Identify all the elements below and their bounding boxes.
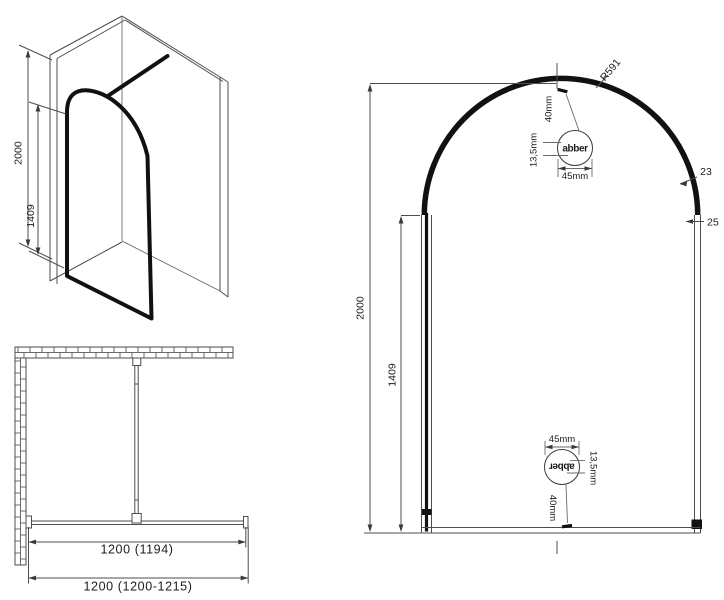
dim-logo-offset-bottom-label: 40mm: [547, 495, 558, 521]
brand-logo-text-top: abber: [562, 144, 588, 155]
dim-inner-width: 1200 (1194): [29, 527, 249, 584]
dim-elevation-overall-height: 2000: [355, 63, 558, 533]
dim-inner-width-label: 1200 (1194): [100, 543, 173, 557]
dim-elevation-overall-height-label: 2000: [355, 296, 367, 320]
dim-outer-width-label: 1200 (1200-1215): [84, 580, 193, 594]
technical-drawing-sheet: 2000 1409: [0, 0, 724, 600]
elevation-view: 2000 1409 R591 23 25: [355, 56, 719, 554]
dim-logo-width-bottom-label: 45mm: [549, 434, 575, 445]
support-bar: [109, 56, 168, 96]
support-bar-topview: [132, 358, 141, 523]
dim-profile-width-label: 25: [707, 217, 719, 229]
dim-elevation-glass-height-label: 1409: [387, 363, 399, 387]
right-profile: [692, 215, 703, 533]
dim-logo-offset-top-label: 40mm: [544, 96, 555, 122]
plan-view: 1200 (1194) 1200 (1200-1215): [15, 347, 248, 594]
dim-frame-thickness-label: 23: [700, 166, 712, 178]
bottom-logo-detail: abber 45mm 13,5mm 40mm: [545, 434, 599, 528]
back-wall-outline: [122, 16, 228, 297]
dim-glass-height-label: 1409: [25, 204, 37, 228]
perspective-view: 2000 1409: [13, 16, 229, 319]
dim-arch-radius-label: R591: [598, 56, 623, 83]
dim-elevation-glass-height: 1409: [387, 216, 421, 533]
glass-panel-frame: [67, 90, 152, 318]
side-wall-outline: [50, 16, 125, 284]
brand-logo-text-bottom: abber: [549, 461, 575, 472]
dim-logo-height-top-label: 13,5mm: [529, 133, 540, 167]
top-wall-hatch: [15, 347, 233, 358]
left-wall-hatch: [15, 358, 26, 565]
left-wall-profile: [422, 213, 432, 533]
dim-outer-width: 1200 (1200-1215): [29, 576, 249, 594]
dim-profile-width: 25: [686, 217, 719, 229]
top-logo-detail: abber 40mm 13,5mm 45mm: [529, 88, 593, 182]
dim-overall-height-label: 2000: [13, 141, 25, 165]
dim-logo-width-top-label: 45mm: [562, 171, 588, 182]
top-logo-mark: [557, 88, 567, 94]
bottom-profile: [422, 528, 701, 555]
dim-arch-radius: R591: [596, 56, 623, 88]
dim-logo-height-bottom-label: 13,5mm: [588, 451, 599, 485]
dim-glass-height: 1409: [25, 102, 66, 268]
